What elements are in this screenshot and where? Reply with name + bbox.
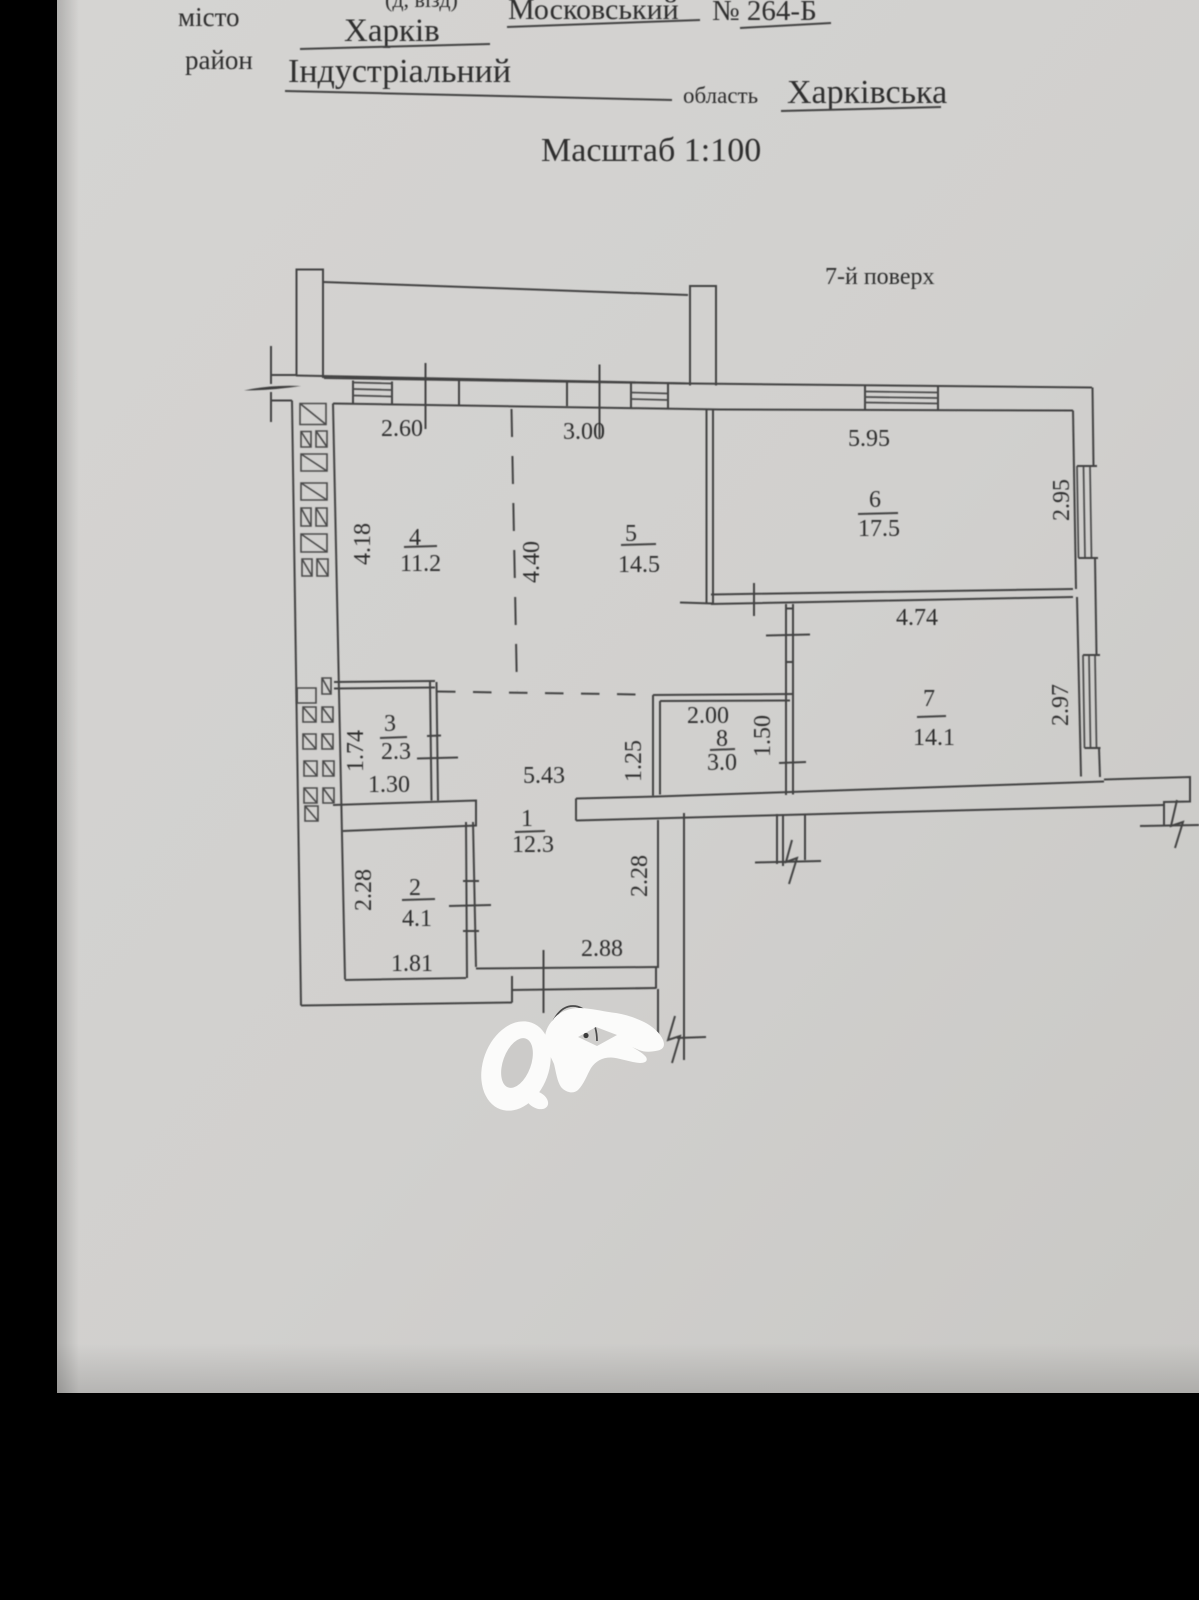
svg-text:3: 3 — [384, 711, 396, 737]
svg-text:2.28: 2.28 — [627, 855, 653, 897]
svg-text:11.2: 11.2 — [400, 551, 441, 577]
svg-text:6: 6 — [869, 487, 881, 513]
svg-text:5: 5 — [625, 521, 637, 547]
svg-text:3.0: 3.0 — [707, 750, 737, 776]
svg-text:Харків: Харків — [344, 13, 440, 49]
svg-text:2.60: 2.60 — [381, 416, 423, 442]
svg-text:14.5: 14.5 — [618, 552, 660, 578]
svg-text:4.40: 4.40 — [519, 541, 545, 583]
svg-text:5.95: 5.95 — [848, 426, 890, 452]
svg-text:1.25: 1.25 — [621, 740, 647, 782]
svg-text:5.43: 5.43 — [523, 763, 565, 789]
svg-text:2.28: 2.28 — [351, 869, 377, 911]
svg-text:2: 2 — [409, 875, 421, 901]
svg-text:(д, візд): (д, візд) — [385, 0, 458, 12]
svg-text:2.95: 2.95 — [1049, 479, 1075, 521]
svg-text:2.88: 2.88 — [581, 936, 623, 962]
svg-text:4.74: 4.74 — [896, 605, 938, 631]
svg-text:2.3: 2.3 — [381, 739, 411, 765]
svg-text:№ 264-Б: № 264-Б — [712, 0, 817, 27]
svg-text:2.97: 2.97 — [1048, 684, 1074, 726]
svg-text:місто: місто — [178, 2, 240, 32]
svg-text:4.1: 4.1 — [402, 906, 432, 932]
svg-text:1.74: 1.74 — [343, 730, 369, 772]
svg-text:область: область — [683, 83, 758, 108]
svg-text:1: 1 — [521, 806, 533, 832]
svg-text:14.1: 14.1 — [913, 725, 955, 751]
svg-text:район: район — [185, 45, 253, 75]
svg-text:12.3: 12.3 — [512, 832, 554, 858]
svg-text:Харківська: Харківська — [787, 74, 947, 111]
svg-text:Масштаб 1:100: Масштаб 1:100 — [541, 132, 761, 169]
svg-text:17.5: 17.5 — [858, 516, 900, 542]
svg-text:7-й поверх: 7-й поверх — [825, 264, 935, 290]
svg-text:1.30: 1.30 — [368, 772, 410, 798]
svg-text:8: 8 — [716, 726, 728, 752]
svg-text:1.50: 1.50 — [750, 715, 776, 757]
svg-text:1.81: 1.81 — [391, 951, 433, 977]
svg-text:Індустріальний: Індустріальний — [288, 53, 511, 90]
svg-text:7: 7 — [923, 686, 935, 712]
svg-text:4.18: 4.18 — [350, 523, 376, 565]
svg-text:3.00: 3.00 — [563, 419, 605, 445]
